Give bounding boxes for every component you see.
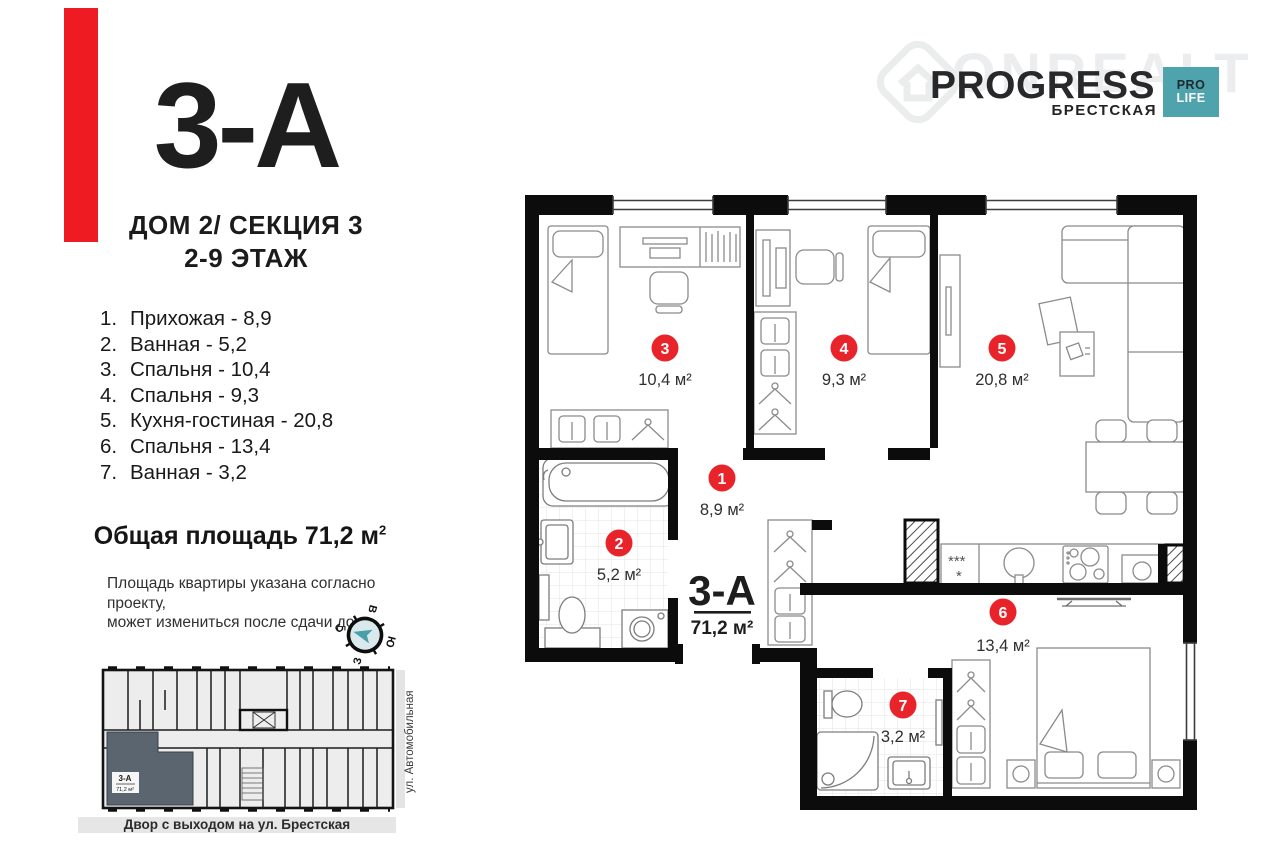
compass-label-v: В (365, 604, 379, 615)
kitchen-counter-icon (941, 544, 1183, 584)
room4-furniture (754, 226, 930, 434)
wardrobe-icon (754, 312, 796, 434)
room-list-item: 3.Спальня - 10,4 (100, 357, 430, 383)
floors-line: 2-9 ЭТАЖ (96, 243, 396, 274)
room-label: Кухня-гостиная - 20,8 (130, 409, 333, 432)
room-list-item: 4.Спальня - 9,3 (100, 383, 430, 409)
room-area-label: 20,8 м² (975, 371, 1029, 389)
room-area-label: 3,2 м² (881, 728, 926, 746)
svg-text:7: 7 (899, 698, 908, 715)
room-list-item: 1.Прихожая - 8,9 (100, 306, 430, 332)
compass-label-yu: Ю (383, 635, 398, 649)
room-badge-4: 4 9,3 м² (822, 335, 867, 390)
total-area-text: Общая площадь 71,2 м (94, 522, 379, 550)
room3-furniture (548, 226, 740, 448)
room-badge-5: 5 20,8 м² (975, 335, 1029, 390)
bed-icon (868, 226, 930, 354)
svg-text:5: 5 (998, 341, 1007, 358)
tv-panel-icon (940, 255, 960, 367)
double-bed-icon (1037, 648, 1150, 788)
building-section-line: ДОМ 2/ СЕКЦИЯ 3 (96, 210, 396, 241)
room-badge-6: 6 13,4 м² (976, 599, 1030, 656)
room-area-label: 9,3 м² (822, 371, 867, 389)
room-label: Спальня - 10,4 (130, 358, 271, 381)
dresser-icon (756, 230, 790, 306)
nightstand-icon (1152, 760, 1180, 788)
room-list-item: 7.Ванная - 3,2 (100, 460, 430, 486)
room-number: 7. (100, 460, 130, 486)
street-bottom-label: Двор с выходом на ул. Брестская (124, 817, 350, 832)
plan-unit-name: 3-А (688, 567, 756, 614)
room-label: Прихожая - 8,9 (130, 307, 272, 330)
sink-icon (537, 520, 573, 564)
plan-unit-label: 3-А 71,2 м² (688, 567, 756, 639)
svg-text:4: 4 (840, 341, 849, 358)
dining-table-icon (1086, 420, 1188, 514)
room-list-item: 6.Спальня - 13,4 (100, 434, 430, 460)
compass-label-s: С (333, 622, 347, 636)
plan-unit-area: 71,2 м² (691, 618, 754, 639)
nightstand-icon (1007, 760, 1035, 788)
room5-furniture: *** * (940, 226, 1188, 606)
brand-badge: PRO LIFE (1163, 67, 1219, 117)
room-label: Ванная - 3,2 (130, 461, 247, 484)
mirror-icon (936, 700, 942, 745)
wardrobe-icon (952, 660, 990, 788)
desk-icon (620, 227, 740, 267)
room-number: 3. (100, 357, 130, 383)
room6-furniture (952, 648, 1180, 788)
tv-icon (1057, 599, 1131, 606)
shower-icon (817, 732, 878, 790)
svg-text:6: 6 (999, 605, 1008, 622)
brand-district: БРЕСТСКАЯ (905, 102, 1157, 119)
bed-icon (548, 226, 608, 354)
hallway-wardrobe (768, 520, 812, 645)
unit-title: 3-А (96, 58, 396, 192)
sink-icon (888, 757, 930, 789)
street-side-label: ул. Автомобильная (404, 690, 416, 793)
room-list-item: 5.Кухня-гостиная - 20,8 (100, 408, 430, 434)
room-number: 5. (100, 408, 130, 434)
plan-unit-divider (694, 611, 751, 614)
apartment-floorplan: *** * (510, 180, 1210, 850)
room-area-label: 13,4 м² (976, 637, 1030, 655)
fridge-star: * (956, 568, 962, 585)
coffee-table-icon (1039, 297, 1094, 376)
vent-shaft (905, 520, 938, 583)
washing-machine-icon (622, 610, 668, 648)
corner-sofa-icon (1062, 226, 1185, 422)
room-badge-1: 1 8,9 м² (700, 465, 745, 520)
minimap-unit-area: 71,2 м² (116, 787, 134, 793)
room-number: 6. (100, 434, 130, 460)
wardrobe-icon (551, 410, 668, 448)
chair-icon (796, 250, 843, 284)
svg-text:3: 3 (661, 341, 670, 358)
room-list-item: 2.Ванная - 5,2 (100, 332, 430, 358)
svg-text:1: 1 (718, 471, 727, 488)
room-label: Спальня - 9,3 (130, 384, 259, 407)
room-label: Спальня - 13,4 (130, 435, 271, 458)
room-label: Ванная - 5,2 (130, 333, 247, 356)
room-number: 2. (100, 332, 130, 358)
room-number: 1. (100, 306, 130, 332)
badge-bottom-label: LIFE (1163, 92, 1219, 105)
room-area-label: 8,9 м² (700, 501, 745, 519)
floorplan-poster: 3-А ДОМ 2/ СЕКЦИЯ 3 2-9 ЭТАЖ 1.Прихожая … (0, 0, 1280, 854)
room-list: 1.Прихожая - 8,9 2.Ванная - 5,2 3.Спальн… (100, 306, 430, 485)
room-badge-3: 3 10,4 м² (638, 335, 692, 390)
room-area-label: 10,4 м² (638, 371, 692, 389)
chair-icon (650, 272, 688, 313)
total-area-sup: 2 (379, 523, 386, 538)
toilet-icon (824, 691, 862, 718)
total-area: Общая площадь 71,2 м2 (70, 522, 410, 551)
room-area-label: 5,2 м² (597, 566, 642, 584)
room-number: 4. (100, 383, 130, 409)
minimap-unit-label: 3-А (119, 774, 132, 783)
bathtub-icon (543, 458, 675, 506)
accent-red-bar (64, 8, 98, 242)
building-minimap: 3-А 71,2 м² ул. Автомобильная Двор с вых… (70, 660, 420, 840)
shelf-icon (539, 575, 549, 620)
svg-text:2: 2 (615, 536, 624, 553)
